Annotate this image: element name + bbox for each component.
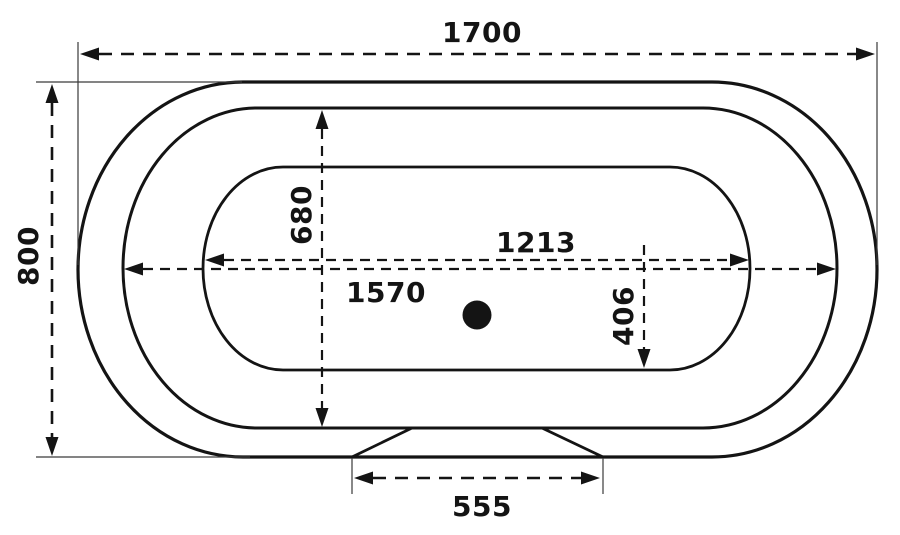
dim-label-base-width: 555 <box>452 490 512 523</box>
dim-overall-length: 1700 <box>80 16 875 61</box>
dim-label-basin-length: 1213 <box>496 226 576 259</box>
tub-base-apron <box>352 428 603 457</box>
arrowhead-down-icon <box>46 437 59 456</box>
dim-label-overall-length: 1700 <box>442 16 522 49</box>
dim-overall-width: 800 <box>12 84 59 456</box>
dim-label-overall-width: 800 <box>12 226 45 286</box>
arrowhead-up-icon <box>46 84 59 103</box>
arrowhead-right-icon <box>817 263 836 276</box>
arrowhead-left-icon <box>80 48 99 61</box>
arrowhead-left-icon <box>354 472 373 485</box>
arrowhead-right-icon <box>856 48 875 61</box>
arrowhead-up-icon <box>316 110 329 129</box>
drain-dot-icon <box>463 301 492 330</box>
arrowhead-left-icon <box>124 263 143 276</box>
arrowhead-right-icon <box>581 472 600 485</box>
dim-label-basin-half-width: 406 <box>607 286 640 346</box>
dim-label-rim-length: 1570 <box>346 276 426 309</box>
dim-base-width: 555 <box>354 472 600 524</box>
arrowhead-left-icon <box>205 254 224 267</box>
arrowhead-down-icon <box>316 408 329 427</box>
bathtub-dimension-diagram: 1700 800 680 1213 1570 <box>0 0 900 535</box>
dim-label-basin-width: 680 <box>285 185 318 245</box>
arrowhead-down-icon <box>638 349 651 368</box>
technical-drawing-canvas: 1700 800 680 1213 1570 <box>0 0 900 535</box>
dim-basin-half-width: 406 <box>607 245 651 368</box>
arrowhead-right-icon <box>730 254 749 267</box>
